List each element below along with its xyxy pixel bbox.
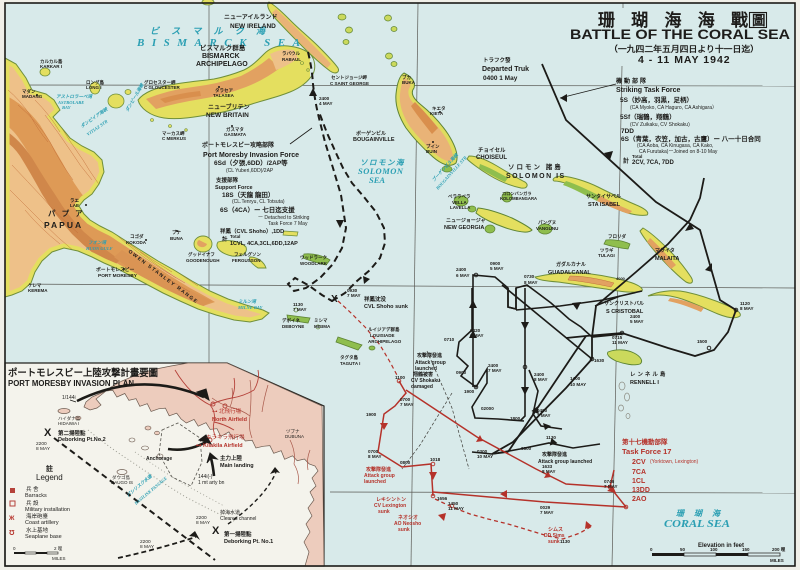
svg-text:Departed Truk: Departed Truk <box>482 66 529 73</box>
svg-text:1130: 1130 <box>546 435 556 440</box>
svg-text:FERGUSSON: FERGUSSON <box>232 258 261 263</box>
svg-text:4 - 11 MAY 1942: 4 - 11 MAY 1942 <box>638 54 731 66</box>
svg-text:PORT MORESBY INVASION PLAN: PORT MORESBY INVASION PLAN <box>8 379 134 388</box>
svg-text:Elevation in feet: Elevation in feet <box>698 543 744 549</box>
svg-text:0900: 0900 <box>456 370 467 375</box>
svg-text:10 MAY: 10 MAY <box>477 454 493 459</box>
svg-text:Military installation: Military installation <box>25 507 70 513</box>
svg-text:Deborking Pt.No.2: Deborking Pt.No.2 <box>58 437 106 443</box>
svg-text:7 MAY: 7 MAY <box>537 413 551 418</box>
svg-text:VANGUNU: VANGUNU <box>536 226 558 231</box>
svg-text:Task Force 7 May: Task Force 7 May <box>268 221 308 227</box>
svg-text:200 哩: 200 哩 <box>772 546 786 553</box>
svg-text:7 MAY: 7 MAY <box>293 307 307 312</box>
svg-text:祥鳳沈没: 祥鳳沈没 <box>364 295 387 303</box>
svg-text:攻撃隊發進: 攻撃隊發進 <box>542 451 568 458</box>
svg-text:コゴダ: コゴダ <box>130 233 144 240</box>
svg-text:タグタ島: タグタ島 <box>340 354 358 361</box>
svg-text:150: 150 <box>742 547 750 552</box>
svg-text:ルイジアデ群島: ルイジアデ群島 <box>368 326 400 333</box>
svg-text:5S（妙高，羽黒，足柄）: 5S（妙高，羽黒，足柄） <box>620 95 693 104</box>
svg-text:フロリダ: フロリダ <box>608 233 626 240</box>
svg-text:Striking Task Force: Striking Task Force <box>616 87 681 94</box>
svg-text:6S（青葉，衣笠，加古，古鷹）ー 八一十日合同: 6S（青葉，衣笠，加古，古鷹）ー 八一十日合同 <box>621 134 761 143</box>
svg-text:KOLOMBANGARA: KOLOMBANGARA <box>500 196 537 201</box>
svg-text:NEW IRELAND: NEW IRELAND <box>230 23 276 30</box>
svg-text:棹海水道: 棹海水道 <box>220 509 240 516</box>
svg-text:CHOISEUL: CHOISEUL <box>476 155 507 161</box>
svg-text:1800: 1800 <box>510 416 521 421</box>
svg-text:海岸砲臺: 海岸砲臺 <box>26 512 49 520</box>
svg-text:パ プ ア: パ プ ア <box>48 208 85 218</box>
svg-text:翔鶴被害: 翔鶴被害 <box>412 371 433 378</box>
svg-text:BUNA: BUNA <box>170 236 184 241</box>
svg-text:S CRISTOBAL: S CRISTOBAL <box>606 309 644 315</box>
svg-text:0710: 0710 <box>444 337 455 342</box>
svg-text:第十七機動部隊: 第十七機動部隊 <box>622 437 668 446</box>
svg-text:BUKA: BUKA <box>402 80 416 85</box>
svg-text:チョイセル: チョイセル <box>478 147 506 154</box>
svg-text:10 MAY: 10 MAY <box>570 382 586 387</box>
svg-text:2AO: 2AO <box>632 496 647 503</box>
svg-text:LAVELLA: LAVELLA <box>450 205 471 210</box>
svg-text:1130: 1130 <box>560 539 570 544</box>
svg-text:MILNE BAY: MILNE BAY <box>237 305 264 310</box>
svg-text:1100: 1100 <box>395 375 405 380</box>
svg-text:TALASEA: TALASEA <box>213 93 235 98</box>
svg-text:ニュージョージャ: ニュージョージャ <box>446 218 486 224</box>
svg-text:(CL Yuberi,6DD)/2AP: (CL Yuberi,6DD)/2AP <box>226 168 274 174</box>
svg-text:ポートモレスビー攻略部隊: ポートモレスビー攻略部隊 <box>202 141 275 149</box>
svg-text:グッドイナフ: グッドイナフ <box>188 251 215 258</box>
svg-text:MISIMA: MISIMA <box>314 324 331 329</box>
svg-text:MADANG: MADANG <box>22 94 43 99</box>
svg-text:MILES: MILES <box>52 556 66 561</box>
svg-text:WOODLARK: WOODLARK <box>300 261 328 266</box>
svg-text:1CL: 1CL <box>632 478 646 485</box>
svg-text:攻撃隊發進: 攻撃隊發進 <box>417 352 443 359</box>
svg-text:1CVL, 4CA,3CL,6DD,12AP: 1CVL, 4CA,3CL,6DD,12AP <box>230 241 298 247</box>
svg-text:7 MAY: 7 MAY <box>540 510 554 515</box>
svg-text:GUADALCANAL: GUADALCANAL <box>548 270 591 276</box>
svg-text:ビスマルク群島: ビスマルク群島 <box>200 43 246 52</box>
svg-text:珊 瑚 海: 珊 瑚 海 <box>676 509 724 518</box>
svg-text:LONG I: LONG I <box>86 85 102 90</box>
svg-text:Ʊ: Ʊ <box>9 530 15 537</box>
svg-text:（一九四二年五月四日より十一日迄）: （一九四二年五月四日より十一日迄） <box>609 44 759 54</box>
svg-text:Task Force 17: Task Force 17 <box>622 447 671 456</box>
svg-text:フェルグソン: フェルグソン <box>234 251 261 258</box>
svg-text:Main landing: Main landing <box>220 463 254 469</box>
svg-text:11 MAY: 11 MAY <box>448 506 464 511</box>
svg-text:8 MAY: 8 MAY <box>140 544 155 550</box>
svg-text:Support Force: Support Force <box>215 185 253 191</box>
svg-text:TULAGI: TULAGI <box>598 253 615 258</box>
svg-text:1900: 1900 <box>366 412 377 417</box>
svg-text:7DD: 7DD <box>621 128 634 135</box>
svg-text:兵 設: 兵 設 <box>26 499 39 507</box>
svg-text:ラバウル: ラバウル <box>282 50 300 57</box>
svg-text:5Sf（瑞鶴，翔鶴）: 5Sf（瑞鶴，翔鶴） <box>620 112 676 121</box>
svg-text:0400 1 May: 0400 1 May <box>483 75 518 82</box>
svg-text:ソロモン 諸島: ソロモン 諸島 <box>508 162 563 171</box>
svg-text:2 哩: 2 哩 <box>54 546 63 551</box>
svg-text:7CA: 7CA <box>632 469 646 476</box>
svg-text:サンクリストバル: サンクリストバル <box>604 300 644 307</box>
svg-text:5 MAY: 5 MAY <box>490 266 504 271</box>
svg-text:1018: 1018 <box>430 457 441 462</box>
svg-text:水上基地: 水上基地 <box>26 526 49 534</box>
svg-text:ポートモレスビー: ポートモレスビー <box>96 266 135 273</box>
svg-text:X: X <box>331 294 338 305</box>
svg-text:C SAINT GEORGE: C SAINT GEORGE <box>330 81 369 86</box>
svg-text:CORAL SEA: CORAL SEA <box>664 519 730 530</box>
svg-text:主力上陸: 主力上陸 <box>220 454 243 462</box>
svg-text:Total: Total <box>230 234 240 239</box>
svg-text:NEW BRITAIN: NEW BRITAIN <box>206 112 249 119</box>
svg-text:Port Moresby Invasion Force: Port Moresby Invasion Force <box>203 152 299 159</box>
svg-text:1656: 1656 <box>437 496 448 501</box>
svg-text:NEW GEORGIA: NEW GEORGIA <box>444 225 484 231</box>
svg-text:⊶ 北飛行場: ⊶ 北飛行場 <box>212 407 242 415</box>
svg-text:セントジョージ岬: セントジョージ岬 <box>331 74 367 81</box>
svg-text:7 MAY: 7 MAY <box>604 484 618 489</box>
svg-text:6S（4CA）ー 七日迄支援: 6S（4CA）ー 七日迄支援 <box>220 205 295 214</box>
svg-text:TAGUTA I: TAGUTA I <box>340 361 360 366</box>
svg-text:0800: 0800 <box>521 446 532 451</box>
svg-text:X: X <box>212 525 220 537</box>
svg-text:(CA Myoko, CA Haguro, CA Ashig: (CA Myoko, CA Haguro, CA Ashigara） <box>630 105 717 111</box>
svg-text:PORT MORESBY: PORT MORESBY <box>98 273 138 279</box>
svg-text:2400: 2400 <box>456 267 467 272</box>
svg-text:BUIN: BUIN <box>426 149 437 154</box>
svg-text:BISMARCK: BISMARCK <box>202 53 240 60</box>
svg-text:ARCHIPELAGO: ARCHIPELAGO <box>368 339 402 344</box>
svg-text:GOODENOUGH: GOODENOUGH <box>186 258 220 263</box>
svg-text:PAPUA: PAPUA <box>44 220 83 230</box>
svg-text:HUON GULF: HUON GULF <box>85 246 113 251</box>
svg-text:7 MAY: 7 MAY <box>488 368 502 373</box>
svg-text:1900: 1900 <box>464 389 475 394</box>
svg-text:2CV: 2CV <box>632 459 646 466</box>
svg-text:第二揚陸點: 第二揚陸點 <box>58 429 86 437</box>
svg-text:BATTLE OF THE CORAL SEA: BATTLE OF THE CORAL SEA <box>570 26 790 42</box>
svg-text:6Sd（夕張,6DD）/2AP等: 6Sd（夕張,6DD）/2AP等 <box>214 158 288 167</box>
svg-text:註: 註 <box>46 464 53 473</box>
svg-text:マライタ: マライタ <box>655 247 675 254</box>
svg-text:第一揚陸點: 第一揚陸點 <box>224 530 252 538</box>
svg-text:C MERKUS: C MERKUS <box>162 136 186 141</box>
svg-text:LAE: LAE <box>70 203 79 208</box>
svg-text:DUBUNA: DUBUNA <box>285 434 304 439</box>
svg-text:トラフク發: トラフク發 <box>483 56 511 64</box>
svg-text:フオン湾: フオン湾 <box>88 240 107 245</box>
svg-text:LOUISIADE: LOUISIADE <box>370 333 395 338</box>
svg-text:ポートモレスビー上陸攻撃計畫要圖: ポートモレスビー上陸攻撃計畫要圖 <box>8 367 158 379</box>
svg-text:攻撃隊發進: 攻撃隊發進 <box>366 466 392 473</box>
svg-text:ネオシオ: ネオシオ <box>398 514 418 521</box>
svg-text:sunk: sunk <box>548 539 560 545</box>
svg-text:50: 50 <box>680 547 686 552</box>
svg-text:ガダルカナル: ガダルカナル <box>556 261 586 268</box>
svg-text:DAUGO IS: DAUGO IS <box>111 480 133 485</box>
svg-text:18S（天龍 龍田）: 18S（天龍 龍田） <box>222 190 274 199</box>
svg-text:ミルン湾: ミルン湾 <box>238 299 257 304</box>
svg-text:8 MAY: 8 MAY <box>740 306 754 311</box>
svg-text:0730: 0730 <box>524 274 535 279</box>
svg-text:11 MAY: 11 MAY <box>612 340 628 345</box>
svg-text:Seaplane base: Seaplane base <box>25 534 62 540</box>
svg-text:0800: 0800 <box>400 460 411 465</box>
svg-text:⊶ Kilakila Airfield: ⊶ Kilakila Airfield <box>196 443 243 449</box>
svg-text:1 mt arty bn: 1 mt arty bn <box>198 480 225 486</box>
svg-text:BOUGAINVILLE: BOUGAINVILLE <box>353 137 395 143</box>
svg-text:レンネル島: レンネル島 <box>630 370 667 378</box>
svg-text:damaged: damaged <box>411 384 433 390</box>
svg-text:機動部隊: 機動部隊 <box>616 77 648 85</box>
svg-text:SOLOMON IS: SOLOMON IS <box>506 173 566 180</box>
svg-text:13DD: 13DD <box>632 487 650 494</box>
svg-text:Attack group launched: Attack group launched <box>538 459 592 465</box>
svg-text:4 MAY: 4 MAY <box>319 101 333 106</box>
svg-text:8 MAY: 8 MAY <box>36 446 51 452</box>
svg-text:Legend: Legend <box>36 473 63 482</box>
svg-text:キラキラ飛行場: キラキラ飛行場 <box>206 433 245 441</box>
svg-text:5 MAY: 5 MAY <box>630 319 644 324</box>
svg-text:1500: 1500 <box>697 339 708 344</box>
svg-text:(CV Zuikaku, CV Shokaku): (CV Zuikaku, CV Shokaku) <box>630 122 690 128</box>
svg-text:launched: launched <box>364 479 386 485</box>
svg-text:North Airfield: North Airfield <box>212 417 247 423</box>
svg-text:SEA: SEA <box>369 175 385 185</box>
svg-text:2CV, 7CA, 7DD: 2CV, 7CA, 7DD <box>632 160 674 166</box>
svg-text:パングヌ: パングヌ <box>538 219 556 226</box>
svg-text:DEBOYNE: DEBOYNE <box>282 324 304 329</box>
svg-text:(Yorktown, Lexington): (Yorktown, Lexington) <box>650 459 699 465</box>
svg-text:HIDAIWA I: HIDAIWA I <box>58 421 79 426</box>
svg-text:KIETA: KIETA <box>430 111 444 116</box>
svg-text:RABAUL: RABAUL <box>282 57 301 62</box>
svg-text:CVL Shoho sunk: CVL Shoho sunk <box>364 304 409 310</box>
svg-text:KOKODA: KOKODA <box>126 240 147 245</box>
svg-text:Cleared channel: Cleared channel <box>220 516 256 522</box>
svg-text:C GLOUCESTER: C GLOUCESTER <box>144 85 181 90</box>
svg-text:ニューブリテン: ニューブリテン <box>208 103 250 111</box>
svg-text:計: 計 <box>623 157 629 165</box>
svg-text:Anchorage: Anchorage <box>146 456 172 462</box>
svg-text:1630: 1630 <box>594 358 605 363</box>
svg-text:sunk: sunk <box>398 527 410 533</box>
svg-text:ARCHIPELAGO: ARCHIPELAGO <box>196 61 248 68</box>
svg-text:MALAITA: MALAITA <box>655 256 679 262</box>
svg-text:7 MAY: 7 MAY <box>347 293 361 298</box>
svg-text:計: 計 <box>222 235 228 243</box>
svg-text:8 MAY: 8 MAY <box>524 280 538 285</box>
svg-text:ニューアイルランド: ニューアイルランド <box>224 14 277 21</box>
svg-text:(CL.Tenryu, CL Totsuta): (CL.Tenryu, CL Totsuta) <box>232 199 285 205</box>
svg-text:8 MAY: 8 MAY <box>534 377 548 382</box>
svg-text:Coast artillery: Coast artillery <box>25 520 59 526</box>
svg-text:BAY: BAY <box>61 105 72 110</box>
svg-text:X: X <box>44 427 52 439</box>
svg-text:7 MAY: 7 MAY <box>400 402 414 407</box>
svg-text:GASMATA: GASMATA <box>224 132 247 137</box>
svg-text:KEREMA: KEREMA <box>28 288 48 293</box>
svg-text:100: 100 <box>710 547 718 552</box>
svg-text:6 MAY: 6 MAY <box>470 333 484 338</box>
svg-text:8 MAY: 8 MAY <box>196 520 211 526</box>
svg-text:6 MAY: 6 MAY <box>456 273 470 278</box>
svg-text:STA ISABEL: STA ISABEL <box>588 202 621 208</box>
svg-text:RENNELL I: RENNELL I <box>630 380 659 386</box>
svg-text:4000: 4000 <box>616 276 626 281</box>
svg-text:1400: 1400 <box>570 376 581 381</box>
svg-text:支援部隊: 支援部隊 <box>215 176 239 184</box>
svg-text:ウッドラーク: ウッドラーク <box>300 254 327 261</box>
svg-text:8 MAY: 8 MAY <box>542 469 556 474</box>
svg-text:sunk: sunk <box>378 509 390 515</box>
svg-text:02000: 02000 <box>481 406 494 411</box>
svg-text:Deborking Pt. No.1: Deborking Pt. No.1 <box>224 539 273 545</box>
svg-text:Ж: Ж <box>8 516 15 522</box>
svg-text:Total: Total <box>632 154 642 159</box>
svg-text:サンタイサベル: サンタイサベル <box>586 193 621 200</box>
svg-text:ボーゲンビル: ボーゲンビル <box>356 130 386 137</box>
svg-text:デボイネ: デボイネ <box>282 317 300 324</box>
svg-text:KARKAR I: KARKAR I <box>40 64 62 69</box>
svg-text:8 MAY: 8 MAY <box>368 454 382 459</box>
svg-text:CA Furutaka)ーJoined on 8-10 M: CA Furutaka)ーJoined on 8-10 May <box>639 149 718 155</box>
svg-text:ブナ: ブナ <box>172 229 181 236</box>
svg-text:Barracks: Barracks <box>25 493 47 499</box>
svg-text:1/144i: 1/144i <box>62 395 76 401</box>
svg-text:MILES: MILES <box>770 558 784 563</box>
svg-text:兵 舎: 兵 舎 <box>26 485 39 493</box>
svg-text:アストロラーベ湾: アストロラーベ湾 <box>56 94 93 99</box>
